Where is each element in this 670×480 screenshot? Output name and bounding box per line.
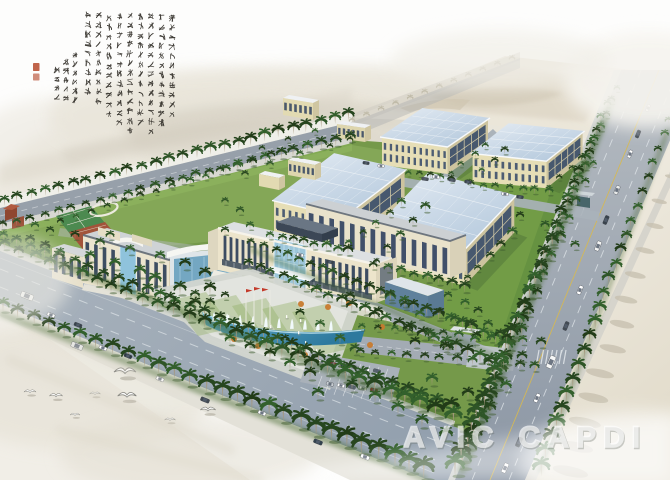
svg-text:AVIC: AVIC bbox=[403, 421, 500, 454]
svg-text:CAPDI: CAPDI bbox=[519, 421, 647, 454]
